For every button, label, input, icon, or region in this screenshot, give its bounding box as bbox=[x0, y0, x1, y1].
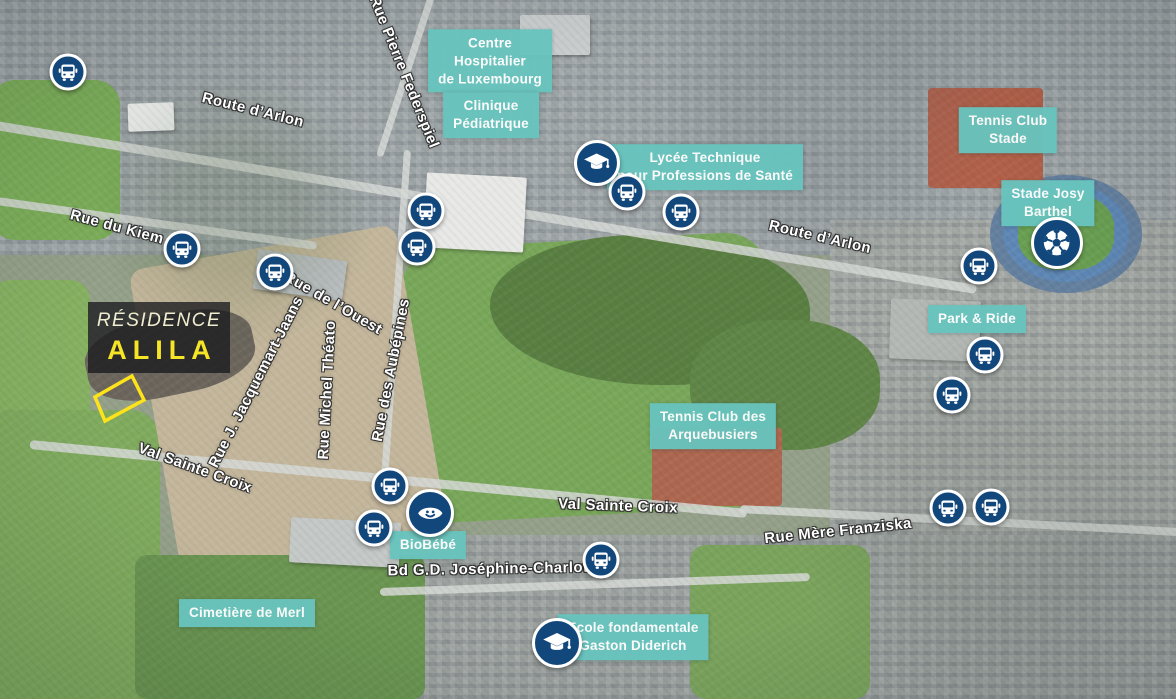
bus-stop-marker[interactable] bbox=[399, 229, 436, 266]
bus-icon bbox=[590, 549, 611, 570]
bus-icon bbox=[974, 344, 995, 365]
bus-stop-marker[interactable] bbox=[50, 54, 87, 91]
bus-stop-marker[interactable] bbox=[967, 337, 1004, 374]
bus-icon bbox=[57, 61, 78, 82]
residence-title: RÉSIDENCE bbox=[97, 310, 221, 332]
map-canvas: Route d’ArlonRue Pierre FederspielRue du… bbox=[0, 0, 1176, 699]
soccer-ball-icon bbox=[1041, 227, 1072, 258]
graduation-cap-icon bbox=[542, 628, 572, 658]
smiley-face-icon bbox=[416, 499, 445, 528]
bus-icon bbox=[379, 475, 400, 496]
bus-icon bbox=[670, 201, 691, 222]
smiley-face-marker[interactable] bbox=[406, 489, 454, 537]
bus-icon bbox=[363, 517, 384, 538]
graduation-cap-icon bbox=[583, 149, 610, 176]
bus-icon bbox=[980, 496, 1001, 517]
soccer-ball-marker[interactable] bbox=[1031, 217, 1083, 269]
bus-stop-marker[interactable] bbox=[961, 248, 998, 285]
bus-stop-marker[interactable] bbox=[930, 490, 967, 527]
bus-icon bbox=[406, 236, 427, 257]
bus-stop-marker[interactable] bbox=[372, 468, 409, 505]
bus-stop-marker[interactable] bbox=[356, 510, 393, 547]
bus-stop-marker[interactable] bbox=[164, 231, 201, 268]
bus-stop-marker[interactable] bbox=[583, 542, 620, 579]
residence-name: ALILA bbox=[107, 335, 216, 366]
bus-icon bbox=[941, 384, 962, 405]
bus-icon bbox=[264, 261, 285, 282]
bus-stop-marker[interactable] bbox=[934, 377, 971, 414]
bus-icon bbox=[937, 497, 958, 518]
bus-stop-marker[interactable] bbox=[609, 174, 646, 211]
residence-callout: RÉSIDENCE ALILA bbox=[88, 302, 230, 373]
graduation-cap-marker[interactable] bbox=[574, 140, 620, 186]
bus-icon bbox=[616, 181, 637, 202]
bus-icon bbox=[171, 238, 192, 259]
bus-stop-marker[interactable] bbox=[973, 489, 1010, 526]
bus-stop-marker[interactable] bbox=[663, 194, 700, 231]
bus-icon bbox=[968, 255, 989, 276]
bus-stop-marker[interactable] bbox=[257, 254, 294, 291]
graduation-cap-marker[interactable] bbox=[532, 618, 582, 668]
bus-stop-marker[interactable] bbox=[408, 193, 445, 230]
bus-icon bbox=[415, 200, 436, 221]
